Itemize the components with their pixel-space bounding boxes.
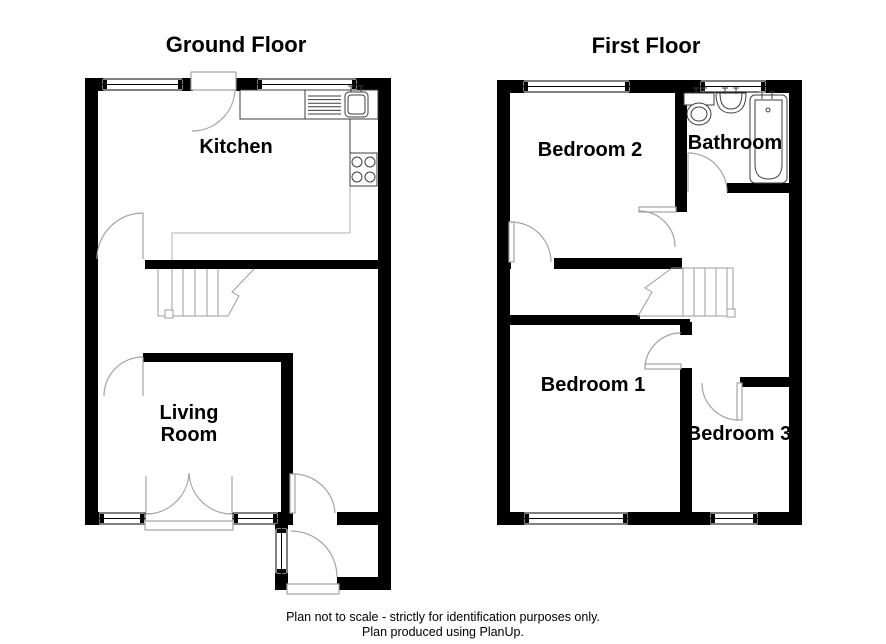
gf-front-door [287,531,339,594]
bedroom1-label: Bedroom 1 [541,374,645,396]
ff-bedroom1-door [645,333,681,369]
gf-wall-top-3 [235,78,258,91]
ff-wall-bottom-2 [628,512,710,525]
gf-wall-bottom-3 [337,512,391,525]
gf-window-top-left [102,79,183,90]
gf-wall-porch-left-2 [275,573,288,590]
gf-wall-left [85,78,98,525]
ff-window-top-left [523,81,630,92]
gf-french-doors [145,473,233,530]
ff-wall-bottom-3 [758,512,802,525]
bathroom-label: Bathroom [688,132,782,154]
ff-wall-bedroom2-bottom [554,258,682,269]
ff-stairs [638,268,735,317]
ff-wall-bottom-1 [497,512,524,525]
footer-line-1: Plan not to scale - strictly for identif… [286,610,600,624]
bedroom3-label: Bedroom 3 [687,423,791,445]
ff-window-top-right [700,81,766,92]
ff-wall-corridor-stub [680,322,692,335]
gf-back-door [191,72,236,131]
living-room-label-line1: Living [160,402,219,424]
ff-bedroom3-door [702,383,742,420]
ff-window-bottom-left [524,513,628,524]
gf-wall-bottom-1 [85,512,99,525]
first-floor-title: First Floor [592,33,701,58]
ff-bedroom2-door [509,222,551,262]
gf-living-room-door [104,357,143,396]
footer-disclaimer: Plan not to scale - strictly for identif… [286,610,600,639]
ff-wall-left [497,80,510,525]
gf-window-porch [276,528,287,574]
ff-wall-bedroom3-top [740,377,789,387]
ground-floor-title: Ground Floor [166,32,307,57]
gf-window-top-right [257,79,357,90]
ff-window-bottom-right [710,513,758,524]
gf-window-bottom-left [99,513,145,524]
ff-landing-door [639,207,676,247]
ff-wall-top-2 [629,80,701,93]
toilet-symbol [684,88,714,125]
kitchen-label: Kitchen [199,136,272,158]
gf-kitchen-door [97,213,143,259]
living-room-label-line2: Room [161,424,218,446]
ff-wall-right [789,80,802,525]
floor-plan-drawing: Ground Floor [0,0,886,644]
ff-wall-bathroom-partition [675,93,687,212]
gf-wall-living-top [143,353,293,362]
bedroom2-label: Bedroom 2 [538,139,642,161]
ff-wall-bedroom1-top [510,315,640,325]
gf-stairs [158,269,254,318]
kitchen-hob-symbol [350,153,377,186]
ff-bathroom-door [688,153,727,192]
ff-wall-bathroom-bottom [727,183,789,193]
gf-kitchen-boundary-line [172,186,350,260]
floor-plan-page: Ground Floor [0,0,886,644]
gf-hall-door [290,474,335,513]
ground-floor-plan: Ground Floor [85,32,391,594]
gf-wall-porch-bottom [337,577,391,590]
first-floor-plan: First Floor [497,33,802,525]
gf-window-bottom-right [233,513,278,524]
gf-wall-kitchen [145,260,378,269]
footer-line-2: Plan produced using PlanUp. [362,625,524,639]
